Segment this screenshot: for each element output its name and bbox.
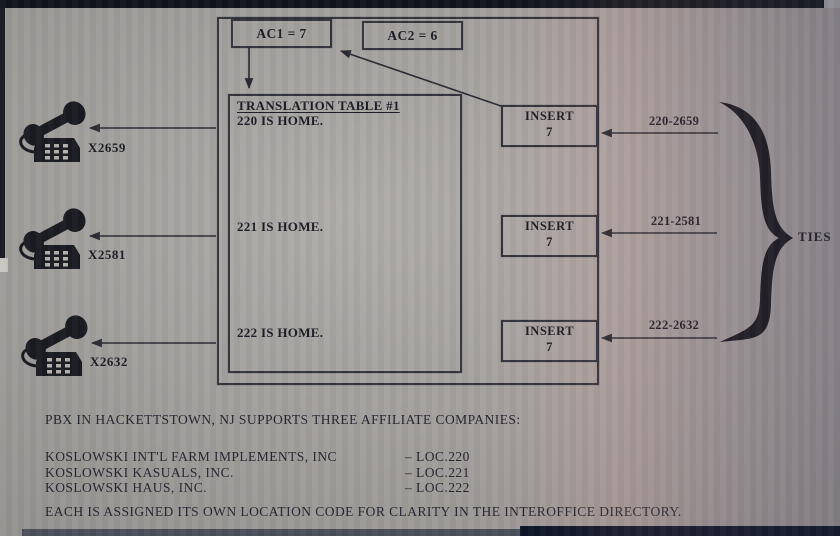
insert-digit: 7 — [503, 340, 596, 356]
photo-top-edge — [0, 0, 840, 8]
photo-left-notch — [0, 258, 8, 272]
extension-label: X2632 — [90, 354, 128, 370]
caption-outro: EACH IS ASSIGNED ITS OWN LOCATION CODE F… — [45, 504, 825, 520]
telephone-icon — [14, 203, 94, 275]
company-list: KOSLOWSKI INT'L FARM IMPLEMENTS, INC – L… — [45, 449, 805, 496]
ac2-box: AC2 = 6 — [362, 21, 463, 50]
caption-intro: PBX IN HACKETTSTOWN, NJ SUPPORTS THREE A… — [45, 412, 805, 428]
insert-digit: 7 — [503, 125, 596, 141]
insert-digit: 7 — [503, 235, 596, 251]
company-loc: – LOC.222 — [405, 480, 470, 496]
insert-box-1: INSERT 7 — [501, 105, 598, 147]
scanned-pbx-diagram: AC1 = 7 AC2 = 6 TRANSLATION TABLE #1 220… — [0, 0, 840, 536]
tie-label-3: 222-2632 — [626, 318, 722, 333]
telephone-icon — [16, 310, 96, 382]
photo-bottom-edge-right — [520, 526, 840, 536]
company-name: KOSLOWSKI INT'L FARM IMPLEMENTS, INC — [45, 449, 405, 465]
translation-table-box: TRANSLATION TABLE #1 220 IS HOME. 221 IS… — [228, 94, 462, 373]
extension-label: X2581 — [88, 247, 126, 263]
ac1-box: AC1 = 7 — [231, 19, 332, 48]
translation-table-title: TRANSLATION TABLE #1 — [237, 98, 400, 114]
phone-group-3: X2632 — [16, 310, 96, 382]
company-name: KOSLOWSKI KASUALS, INC. — [45, 465, 405, 481]
ac1-label: AC1 = 7 — [256, 26, 306, 42]
tie-label-1: 220-2659 — [626, 114, 722, 129]
ties-brace-icon — [719, 102, 793, 342]
ties-label: TIES — [798, 229, 832, 245]
insert-word: INSERT — [503, 109, 596, 125]
company-row: KOSLOWSKI INT'L FARM IMPLEMENTS, INC – L… — [45, 449, 805, 465]
photo-bottom-edge-left — [22, 529, 520, 536]
telephone-icon — [14, 96, 94, 168]
photo-left-edge — [0, 8, 5, 258]
photo-top-right-notch — [824, 0, 840, 8]
ac2-label: AC2 = 6 — [387, 28, 437, 44]
translation-row-220: 220 IS HOME. — [237, 113, 323, 129]
phone-group-2: X2581 — [14, 203, 94, 275]
tie-label-2: 221-2581 — [628, 214, 724, 229]
phone-group-1: X2659 — [14, 96, 94, 168]
translation-row-222: 222 IS HOME. — [237, 325, 323, 341]
company-row: KOSLOWSKI KASUALS, INC. – LOC.221 — [45, 465, 805, 481]
insert-word: INSERT — [503, 324, 596, 340]
insert-box-2: INSERT 7 — [501, 215, 598, 257]
translation-row-221: 221 IS HOME. — [237, 219, 323, 235]
company-name: KOSLOWSKI HAUS, INC. — [45, 480, 405, 496]
company-loc: – LOC.220 — [405, 449, 470, 465]
company-row: KOSLOWSKI HAUS, INC. – LOC.222 — [45, 480, 805, 496]
extension-label: X2659 — [88, 140, 126, 156]
insert-box-3: INSERT 7 — [501, 320, 598, 362]
company-loc: – LOC.221 — [405, 465, 470, 481]
insert-word: INSERT — [503, 219, 596, 235]
